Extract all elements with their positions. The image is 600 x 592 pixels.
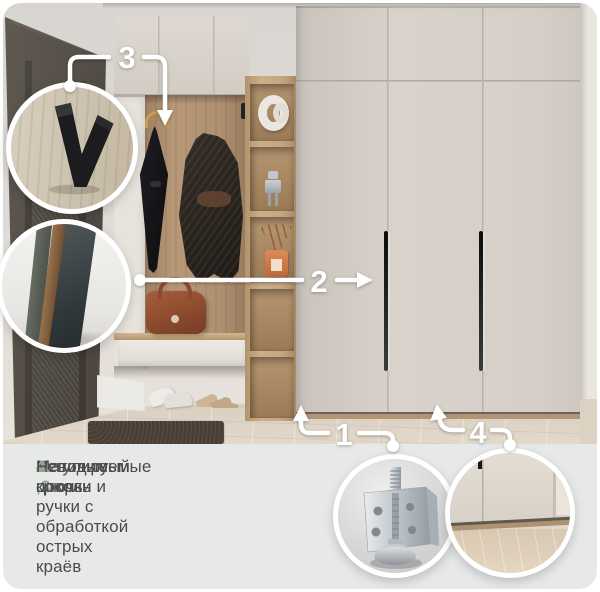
bag-handle bbox=[158, 277, 192, 299]
wardrobe-doors bbox=[296, 6, 580, 419]
plinth-handle-tip bbox=[478, 453, 482, 469]
umbrella-handle bbox=[145, 111, 169, 128]
wardrobe-handle bbox=[479, 231, 483, 371]
bench-drawer bbox=[118, 340, 245, 366]
robot-figurine bbox=[268, 193, 271, 206]
coat-trim bbox=[197, 191, 231, 207]
umbrella-band bbox=[150, 181, 161, 187]
bench-shadow bbox=[114, 366, 248, 379]
plinth-side-wall bbox=[554, 453, 570, 515]
side-wall bbox=[580, 3, 597, 444]
robot-figurine bbox=[268, 171, 278, 179]
plinth-door-fronts bbox=[450, 453, 570, 523]
upper-cabinets bbox=[114, 16, 249, 97]
adjustable-foot-glyph bbox=[338, 459, 452, 573]
donut-vase-detail bbox=[273, 103, 289, 123]
doormat bbox=[88, 421, 224, 444]
niche-shadow bbox=[145, 95, 248, 104]
robot-figurine bbox=[275, 193, 278, 206]
wardrobe-plinth bbox=[296, 412, 580, 419]
legend-text: Невидимый цоколь bbox=[36, 457, 130, 497]
shelf-compartment bbox=[250, 289, 294, 351]
shelf-compartment bbox=[250, 147, 294, 211]
hanging-coat bbox=[179, 133, 243, 283]
bench-top bbox=[114, 333, 248, 340]
white-sneaker bbox=[163, 392, 192, 409]
bag-logo bbox=[171, 315, 179, 323]
v-hook-icon bbox=[6, 82, 138, 214]
rounded-edge-panels-icon bbox=[0, 219, 131, 353]
v-hook-glyph bbox=[11, 87, 133, 209]
plinth-floor bbox=[450, 529, 570, 573]
robot-figurine bbox=[265, 180, 281, 193]
coat-texture bbox=[179, 133, 243, 283]
recessed-plinth-icon bbox=[445, 448, 575, 578]
product-card: 1.Регулируемые опоры 2 ,3.Матовые крючки… bbox=[0, 0, 600, 592]
diffuser-label bbox=[271, 259, 282, 271]
shelf-compartment bbox=[250, 357, 294, 418]
door-frame-highlight bbox=[5, 21, 107, 55]
adjustable-foot-icon bbox=[333, 454, 457, 578]
floor-sliver bbox=[580, 399, 597, 444]
wardrobe-handle bbox=[384, 231, 388, 371]
